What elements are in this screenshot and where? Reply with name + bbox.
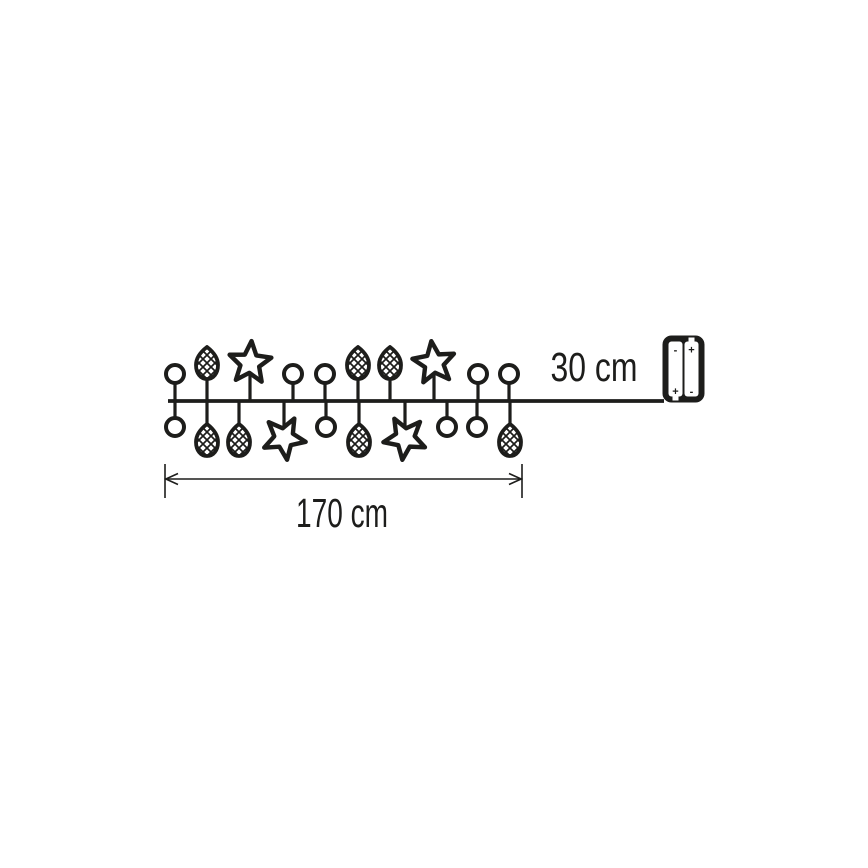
battery-box: - + + - xyxy=(663,336,705,403)
battery-polarity-label: - xyxy=(674,345,678,357)
chain-length-label: 170 cm xyxy=(296,490,388,536)
circle-light xyxy=(500,365,518,383)
star-light xyxy=(228,340,273,383)
star-light xyxy=(261,417,308,462)
lead-length-label: 30 cm xyxy=(551,344,638,390)
circle-light xyxy=(438,418,456,436)
circle-light xyxy=(166,418,184,436)
pinecone-light xyxy=(347,347,369,379)
battery-polarity-label: + xyxy=(672,386,678,398)
circle-light xyxy=(317,418,335,436)
pinecone-light xyxy=(196,347,218,379)
battery-terminal-tab xyxy=(689,338,695,342)
star-light xyxy=(382,418,428,463)
pinecone-light xyxy=(196,424,218,456)
pinecone-light xyxy=(228,424,250,456)
circle-light xyxy=(468,418,486,436)
battery-polarity-label: - xyxy=(690,386,694,398)
star-light xyxy=(411,339,457,384)
circle-light xyxy=(316,365,334,383)
pinecone-light xyxy=(499,424,521,456)
circle-light xyxy=(469,365,487,383)
pinecone-light xyxy=(348,424,370,456)
circle-light xyxy=(284,365,302,383)
page: - + + - 30 cm 170 cm xyxy=(0,0,868,868)
battery-polarity-label: + xyxy=(688,345,694,357)
circle-light xyxy=(166,365,184,383)
pinecone-light xyxy=(379,347,401,379)
string-lights-diagram: - + + - 30 cm 170 cm xyxy=(0,0,868,868)
